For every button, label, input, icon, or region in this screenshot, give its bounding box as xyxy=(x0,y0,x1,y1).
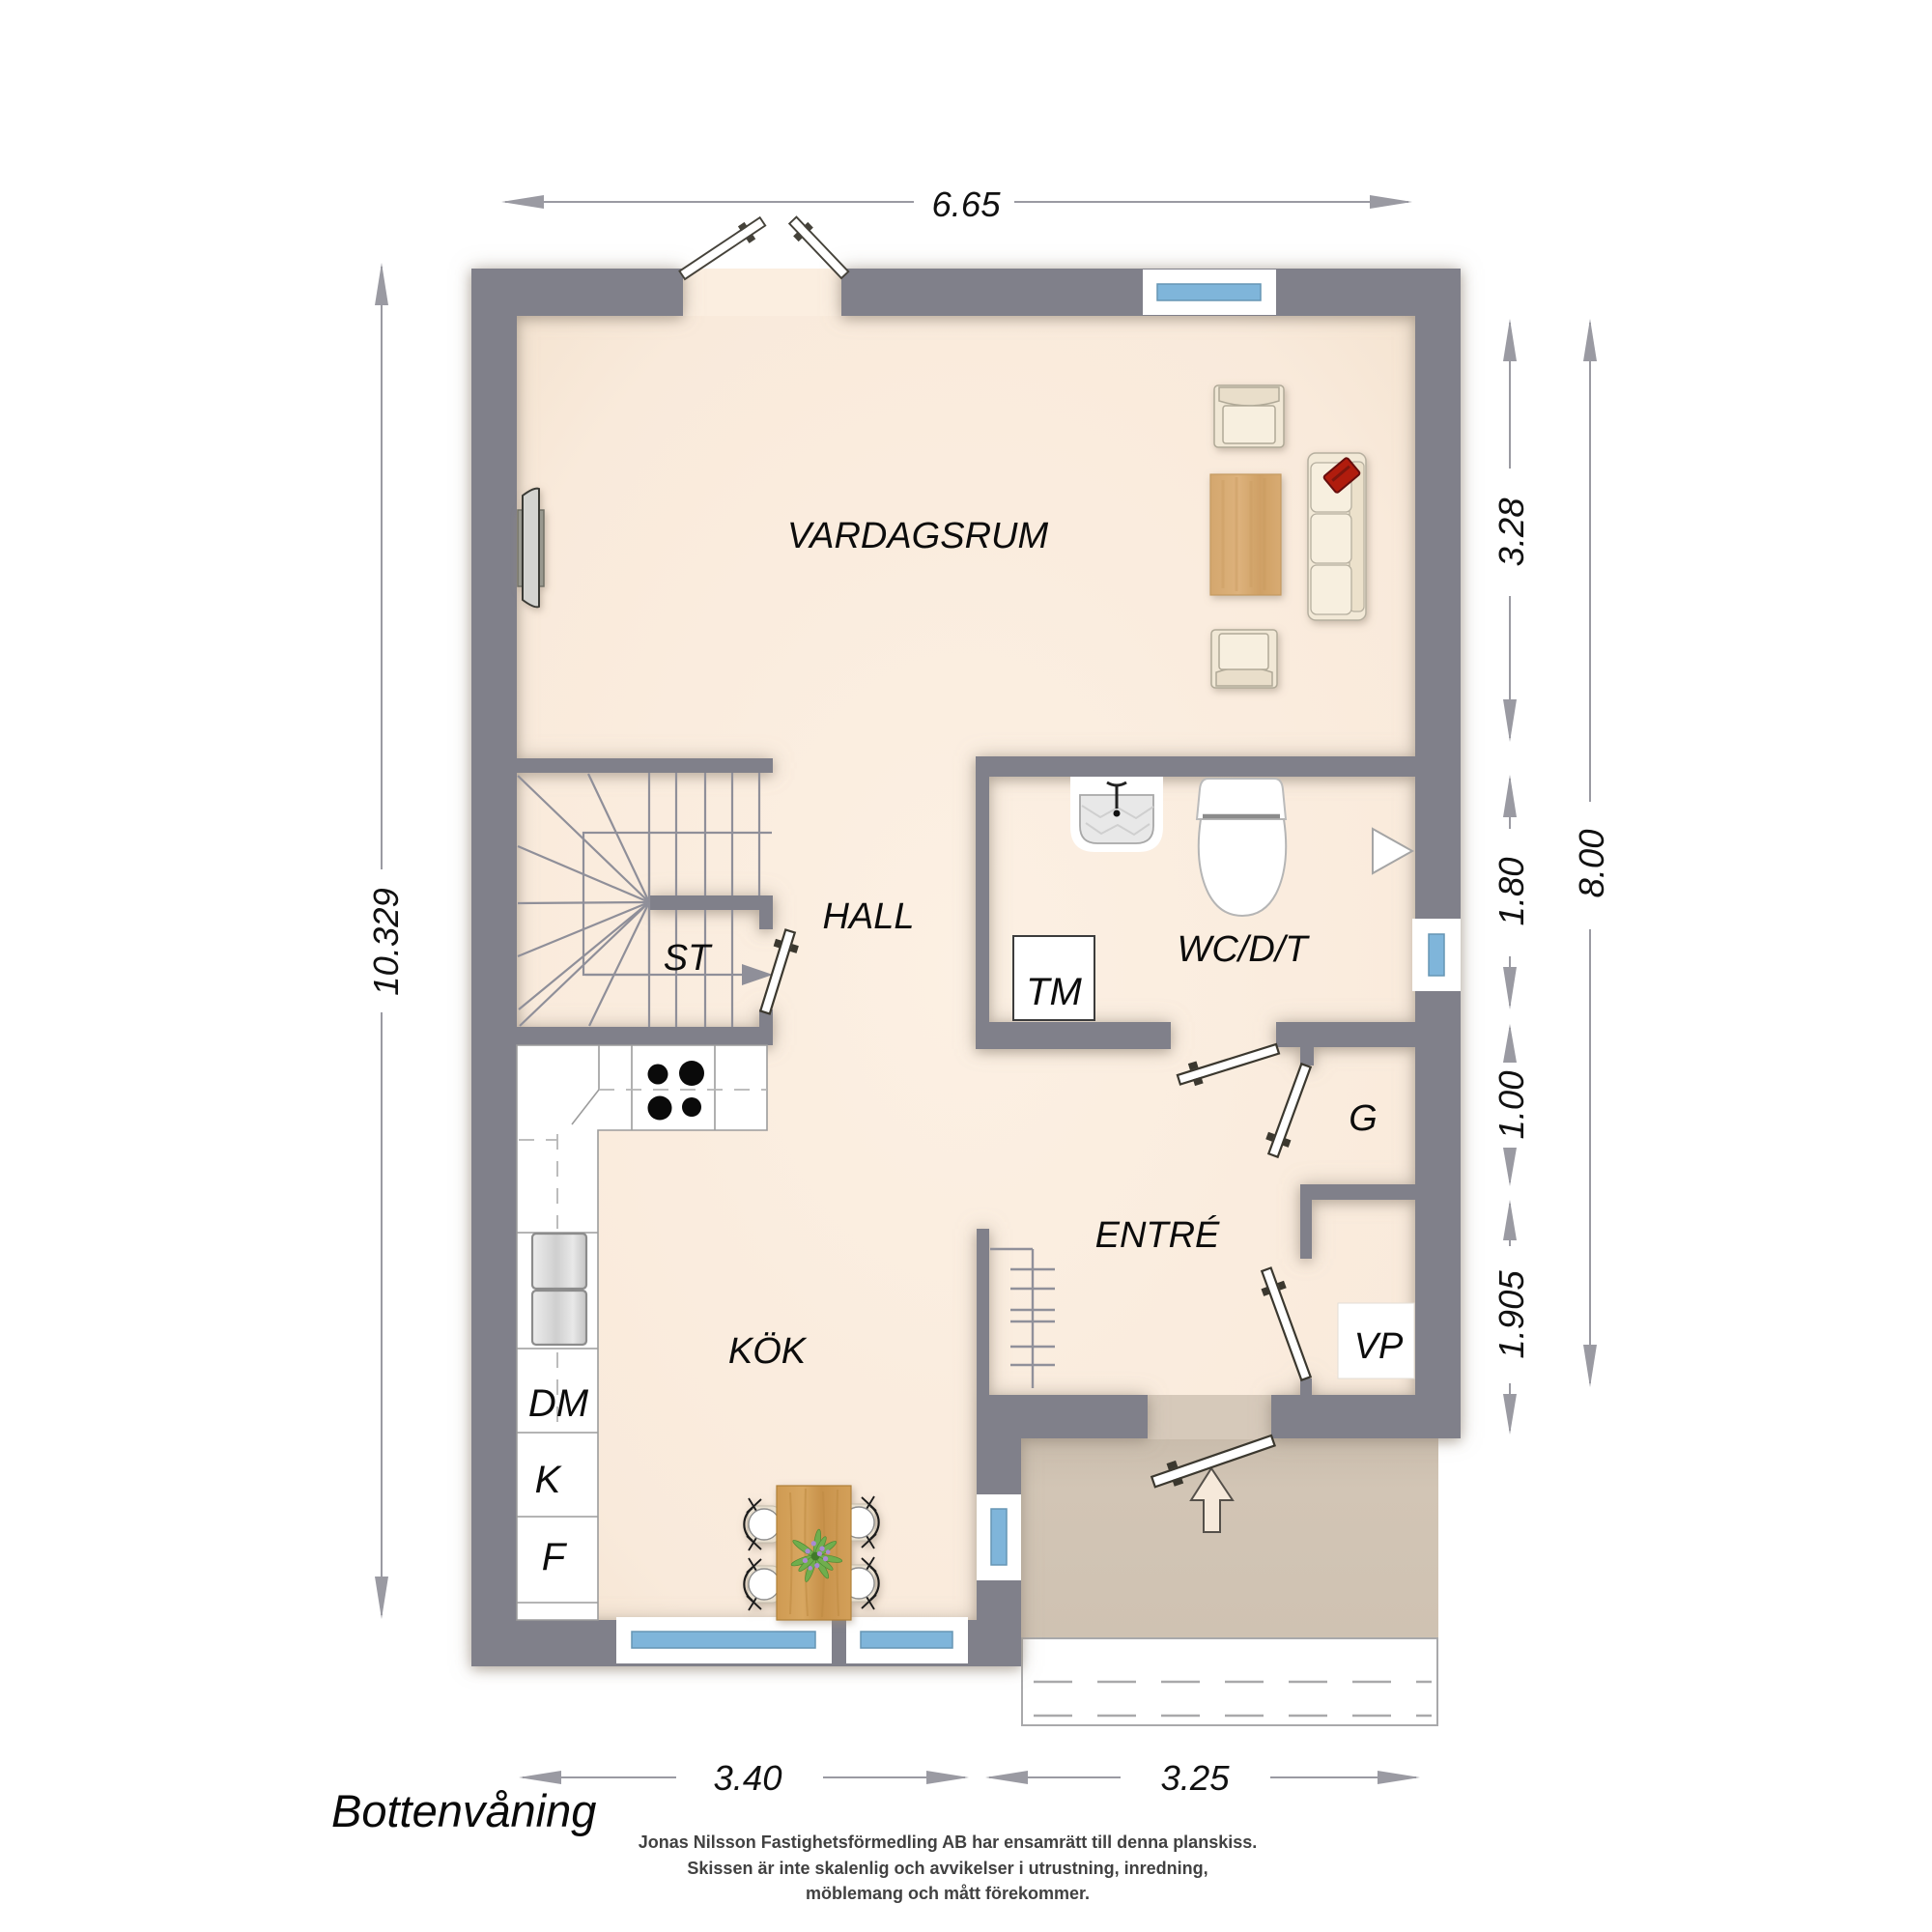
svg-text:8.00: 8.00 xyxy=(1572,829,1611,897)
svg-text:Jonas Nilsson Fastighetsförmed: Jonas Nilsson Fastighetsförmedling AB ha… xyxy=(639,1833,1258,1852)
svg-text:6.65: 6.65 xyxy=(931,185,1001,224)
svg-text:KÖK: KÖK xyxy=(728,1331,808,1372)
svg-text:DM: DM xyxy=(528,1382,589,1425)
svg-text:G: G xyxy=(1349,1098,1378,1139)
svg-text:1.80: 1.80 xyxy=(1492,857,1531,925)
svg-text:1.905: 1.905 xyxy=(1492,1270,1531,1359)
svg-text:3.40: 3.40 xyxy=(713,1758,781,1798)
svg-text:HALL: HALL xyxy=(822,896,914,937)
svg-text:TM: TM xyxy=(1026,971,1082,1013)
svg-text:K: K xyxy=(535,1459,563,1501)
svg-text:Skissen är inte skalenlig och: Skissen är inte skalenlig och avvikelser… xyxy=(687,1859,1207,1878)
svg-text:WC/D/T: WC/D/T xyxy=(1177,929,1310,970)
svg-text:10.329: 10.329 xyxy=(366,888,406,996)
svg-text:VP: VP xyxy=(1354,1326,1404,1367)
svg-text:F: F xyxy=(542,1536,568,1578)
svg-text:3.25: 3.25 xyxy=(1160,1758,1230,1798)
svg-text:1.00: 1.00 xyxy=(1492,1070,1531,1139)
svg-text:möblemang och mått förekommer.: möblemang och mått förekommer. xyxy=(806,1884,1090,1903)
svg-text:VARDAGSRUM: VARDAGSRUM xyxy=(787,516,1049,556)
svg-text:ENTRÉ: ENTRÉ xyxy=(1095,1214,1220,1256)
svg-text:ST: ST xyxy=(664,938,713,979)
svg-text:3.28: 3.28 xyxy=(1492,497,1531,567)
svg-text:Bottenvåning: Bottenvåning xyxy=(331,1785,596,1836)
